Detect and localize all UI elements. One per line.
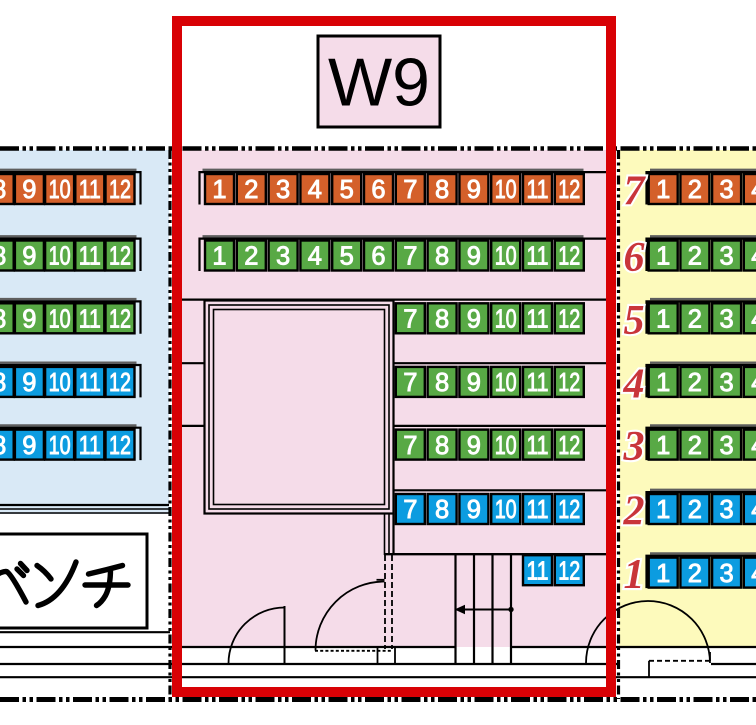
svg-text:4: 4 — [751, 176, 756, 204]
svg-text:6: 6 — [371, 243, 385, 271]
svg-text:2: 2 — [688, 432, 702, 460]
svg-text:4: 4 — [308, 243, 322, 271]
svg-text:8: 8 — [0, 176, 6, 204]
svg-text:8: 8 — [435, 306, 449, 334]
svg-text:12: 12 — [558, 176, 580, 204]
svg-text:12: 12 — [558, 432, 580, 460]
svg-text:2: 2 — [688, 243, 702, 271]
svg-text:3: 3 — [623, 424, 645, 470]
svg-text:10: 10 — [495, 369, 517, 397]
svg-text:9: 9 — [22, 432, 36, 460]
svg-text:4: 4 — [751, 243, 756, 271]
svg-text:11: 11 — [527, 306, 549, 334]
svg-text:2: 2 — [623, 489, 645, 535]
svg-text:10: 10 — [495, 243, 517, 271]
svg-text:12: 12 — [109, 369, 131, 397]
svg-text:2: 2 — [688, 496, 702, 524]
svg-text:1: 1 — [656, 243, 670, 271]
svg-text:4: 4 — [751, 432, 756, 460]
svg-text:3: 3 — [720, 306, 734, 334]
svg-text:11: 11 — [79, 432, 101, 460]
svg-text:9: 9 — [22, 176, 36, 204]
svg-text:8: 8 — [435, 176, 449, 204]
svg-text:8: 8 — [0, 432, 6, 460]
svg-text:11: 11 — [527, 557, 549, 585]
svg-text:1: 1 — [656, 560, 670, 588]
svg-text:12: 12 — [558, 306, 580, 334]
svg-text:12: 12 — [558, 557, 580, 585]
svg-text:2: 2 — [244, 176, 258, 204]
svg-text:7: 7 — [624, 169, 647, 215]
svg-text:4: 4 — [308, 176, 322, 204]
svg-text:9: 9 — [467, 432, 481, 460]
svg-text:12: 12 — [109, 306, 131, 334]
svg-text:7: 7 — [403, 496, 417, 524]
svg-text:3: 3 — [720, 243, 734, 271]
svg-text:12: 12 — [558, 243, 580, 271]
svg-text:8: 8 — [435, 243, 449, 271]
svg-text:W9: W9 — [328, 45, 430, 121]
svg-text:11: 11 — [527, 496, 549, 524]
svg-text:5: 5 — [624, 298, 645, 344]
svg-text:7: 7 — [403, 176, 417, 204]
svg-text:4: 4 — [751, 496, 756, 524]
svg-text:11: 11 — [79, 369, 101, 397]
svg-text:9: 9 — [467, 306, 481, 334]
svg-text:1: 1 — [656, 432, 670, 460]
svg-text:10: 10 — [49, 243, 71, 271]
svg-text:11: 11 — [527, 243, 549, 271]
svg-text:3: 3 — [720, 496, 734, 524]
svg-text:3: 3 — [276, 243, 290, 271]
svg-text:3: 3 — [276, 176, 290, 204]
svg-text:11: 11 — [527, 176, 549, 204]
svg-text:10: 10 — [495, 496, 517, 524]
svg-text:1: 1 — [656, 496, 670, 524]
svg-text:9: 9 — [467, 243, 481, 271]
svg-text:9: 9 — [22, 243, 36, 271]
svg-text:3: 3 — [720, 176, 734, 204]
svg-text:10: 10 — [49, 176, 71, 204]
svg-text:8: 8 — [0, 306, 6, 334]
svg-text:4: 4 — [751, 306, 756, 334]
svg-text:8: 8 — [0, 369, 6, 397]
svg-text:5: 5 — [340, 176, 354, 204]
svg-text:5: 5 — [340, 243, 354, 271]
svg-text:12: 12 — [109, 243, 131, 271]
svg-text:2: 2 — [244, 243, 258, 271]
svg-text:9: 9 — [22, 369, 36, 397]
svg-text:10: 10 — [49, 369, 71, 397]
svg-text:12: 12 — [109, 432, 131, 460]
svg-text:7: 7 — [403, 432, 417, 460]
svg-text:9: 9 — [22, 306, 36, 334]
svg-text:4: 4 — [623, 361, 645, 407]
svg-text:3: 3 — [720, 560, 734, 588]
svg-text:12: 12 — [558, 496, 580, 524]
svg-text:1: 1 — [624, 552, 645, 598]
svg-text:8: 8 — [0, 243, 6, 271]
svg-text:2: 2 — [688, 560, 702, 588]
svg-text:2: 2 — [688, 176, 702, 204]
svg-text:2: 2 — [688, 369, 702, 397]
svg-text:7: 7 — [403, 369, 417, 397]
svg-text:11: 11 — [79, 176, 101, 204]
svg-text:7: 7 — [403, 306, 417, 334]
svg-text:1: 1 — [212, 243, 226, 271]
svg-text:10: 10 — [49, 306, 71, 334]
svg-text:1: 1 — [212, 176, 226, 204]
svg-text:6: 6 — [371, 176, 385, 204]
svg-text:7: 7 — [403, 243, 417, 271]
svg-text:10: 10 — [49, 432, 71, 460]
svg-text:6: 6 — [624, 235, 645, 281]
svg-text:8: 8 — [435, 496, 449, 524]
svg-text:8: 8 — [435, 432, 449, 460]
svg-text:10: 10 — [495, 306, 517, 334]
svg-text:9: 9 — [467, 496, 481, 524]
svg-text:8: 8 — [435, 369, 449, 397]
svg-text:4: 4 — [751, 560, 756, 588]
svg-text:1: 1 — [656, 176, 670, 204]
svg-text:9: 9 — [467, 369, 481, 397]
svg-text:3: 3 — [720, 369, 734, 397]
svg-text:9: 9 — [467, 176, 481, 204]
svg-text:12: 12 — [558, 369, 580, 397]
svg-text:11: 11 — [527, 369, 549, 397]
svg-text:10: 10 — [495, 432, 517, 460]
svg-text:10: 10 — [495, 176, 517, 204]
svg-text:2: 2 — [688, 306, 702, 334]
svg-text:12: 12 — [109, 176, 131, 204]
svg-text:11: 11 — [527, 432, 549, 460]
svg-text:11: 11 — [79, 243, 101, 271]
svg-text:3: 3 — [720, 432, 734, 460]
svg-text:11: 11 — [79, 306, 101, 334]
svg-text:1: 1 — [656, 306, 670, 334]
svg-text:4: 4 — [751, 369, 756, 397]
svg-text:1: 1 — [656, 369, 670, 397]
